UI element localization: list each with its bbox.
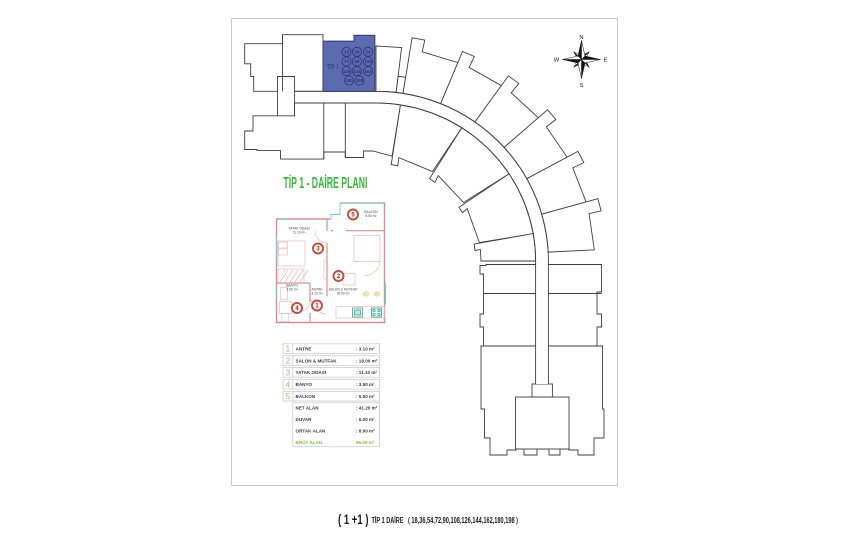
svg-text:18.00 m²: 18.00 m²	[336, 292, 350, 296]
svg-text:3.50 m²: 3.50 m²	[286, 288, 298, 292]
svg-text:2: 2	[286, 356, 291, 366]
svg-text:: 6.00 m²: : 6.00 m²	[356, 417, 375, 422]
svg-text:: 3.10 m²: : 3.10 m²	[356, 346, 375, 351]
svg-text:ORTAK ALAN: ORTAK ALAN	[296, 429, 327, 434]
svg-text:E: E	[604, 58, 608, 64]
svg-text:3: 3	[286, 367, 291, 377]
svg-text:BANYO: BANYO	[296, 382, 313, 387]
svg-text:TİP 1: TİP 1	[327, 62, 339, 71]
svg-text:( 1 +1 ): ( 1 +1 )	[338, 512, 369, 527]
svg-text:SALON & MUTFAK: SALON & MUTFAK	[296, 358, 338, 363]
svg-text:162: 162	[364, 69, 372, 74]
svg-text:36: 36	[355, 49, 360, 54]
svg-text:126: 126	[343, 69, 351, 74]
svg-text:5.50 m²: 5.50 m²	[365, 214, 377, 218]
svg-text:: 5.50 m²: : 5.50 m²	[356, 394, 375, 399]
svg-text:: 41.20 m²: : 41.20 m²	[356, 406, 378, 411]
svg-text:1: 1	[286, 344, 291, 354]
svg-text:180: 180	[345, 78, 353, 83]
svg-text:4: 4	[286, 379, 291, 389]
svg-text:DUVAR: DUVAR	[296, 417, 313, 422]
svg-text:: 18.00 m²: : 18.00 m²	[356, 358, 378, 363]
svg-text:N: N	[579, 35, 583, 41]
svg-text:: 8.00 m²: : 8.00 m²	[356, 429, 375, 434]
svg-text:144: 144	[353, 69, 361, 74]
svg-text:W: W	[554, 58, 560, 64]
svg-text:90: 90	[355, 59, 360, 64]
svg-text:11.10 m²: 11.10 m²	[293, 231, 307, 235]
svg-text:TİP 1 DAİRE: TİP 1 DAİRE	[372, 516, 404, 525]
svg-text:5: 5	[286, 391, 291, 401]
svg-text:BRÜT ALAN: BRÜT ALAN	[296, 439, 323, 445]
svg-text:BALKON: BALKON	[296, 394, 316, 399]
svg-text:( 18,36,54,72,90,108,126,144,1: ( 18,36,54,72,90,108,126,144,162,180,198…	[408, 516, 518, 525]
svg-text:ANTRE: ANTRE	[296, 346, 312, 351]
svg-text:S: S	[580, 83, 584, 89]
svg-text:TİP 1 - DAİRE PLANI: TİP 1 - DAİRE PLANI	[283, 174, 367, 192]
svg-text:: 11.10 m²: : 11.10 m²	[356, 370, 377, 375]
svg-text:: 3.50 m²: : 3.50 m²	[356, 382, 375, 387]
svg-text:3.10 m²: 3.10 m²	[311, 292, 323, 296]
svg-text:108: 108	[364, 59, 372, 64]
svg-text:72: 72	[344, 59, 349, 64]
svg-text:198: 198	[356, 78, 364, 83]
svg-text:18: 18	[344, 49, 349, 54]
svg-text:NET ALAN: NET ALAN	[296, 406, 320, 411]
svg-text:54: 54	[366, 49, 371, 54]
svg-text:55.20 m²: 55.20 m²	[356, 440, 375, 445]
svg-text:YATAK ODASI: YATAK ODASI	[296, 370, 327, 375]
